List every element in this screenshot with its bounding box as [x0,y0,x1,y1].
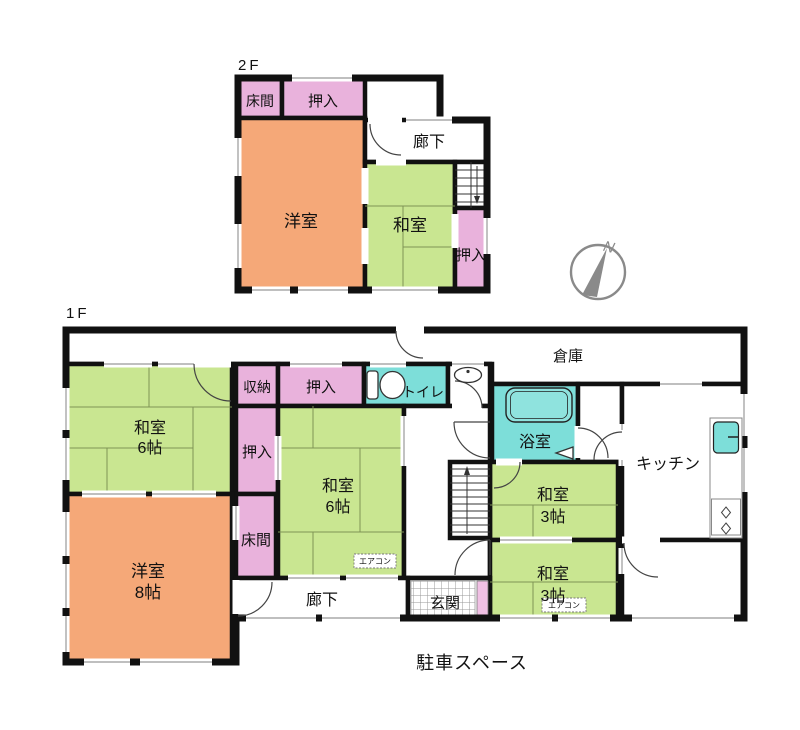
label-1f-yokushitsu: 浴室 [519,433,551,451]
washbasin-icon [455,368,482,383]
label-2f-tokonoma: 床間 [246,93,274,109]
label-1f-genkan: 玄関 [430,595,460,612]
floorplan-2f: 2F [235,57,491,294]
compass-needle [582,248,607,297]
label-2f-youshitsu: 洋室 [284,212,318,231]
parking-caption: 駐車スペース [416,653,528,673]
label-1f-kitchen: キッチン [636,456,700,473]
room-1f-below-kitchen [622,540,744,618]
genkan-step-strip [477,581,488,615]
label-2f-washitsu: 和室 [393,216,427,235]
floorplan-1f: 1F [63,305,748,666]
floorplan-page: 2F [0,0,800,730]
label-1f-souko: 倉庫 [553,348,583,365]
label-1f-washitsu3-top: 和室 [537,486,569,504]
label-1f-washitsu3-bottom: 和室 [537,565,569,583]
label-1f-washitsu6-left-size: 6帖 [138,439,163,457]
label-1f-washitsu3-bottom-size: 3帖 [541,587,566,605]
room-2f-youshitsu [238,118,365,290]
label-1f-washitsu6-center-size: 6帖 [326,498,351,516]
label-1f-oshiire-top: 押入 [306,379,336,396]
washbasin-faucet-icon [466,370,469,373]
label-1f-washitsu6-center: 和室 [322,477,354,495]
label-1f-washitsu3-top-size: 3帖 [541,508,566,526]
label-1f-tokonoma: 床間 [241,532,271,549]
label-1f-shuunou: 収納 [243,379,271,395]
label-1f-youshitsu8-size: 8帖 [135,583,161,602]
stairs-1f [450,462,490,538]
label-1f-rouka: 廊下 [306,591,338,609]
compass-north-label: N [602,238,617,257]
label-2f-oshiire-top: 押入 [308,93,338,110]
aircon-label: エアコン [359,557,391,566]
floorplan-canvas: 2F [0,0,800,730]
aircon-tag-center: エアコン [354,554,396,568]
floor-label-2f: 2F [238,57,262,74]
label-1f-youshitsu8: 洋室 [131,562,165,581]
label-1f-toilet: トイレ [402,384,444,400]
label-1f-oshiire-mid: 押入 [242,444,272,461]
label-2f-oshiire-side: 押入 [456,247,486,264]
label-1f-washitsu6-left: 和室 [134,419,166,437]
toilet-tank-icon [367,371,378,399]
floor-label-1f: 1F [66,305,90,322]
room-1f-washroom [578,384,622,462]
bathtub-icon [506,388,572,422]
compass: N [571,238,625,299]
label-2f-rouka: 廊下 [413,133,445,151]
